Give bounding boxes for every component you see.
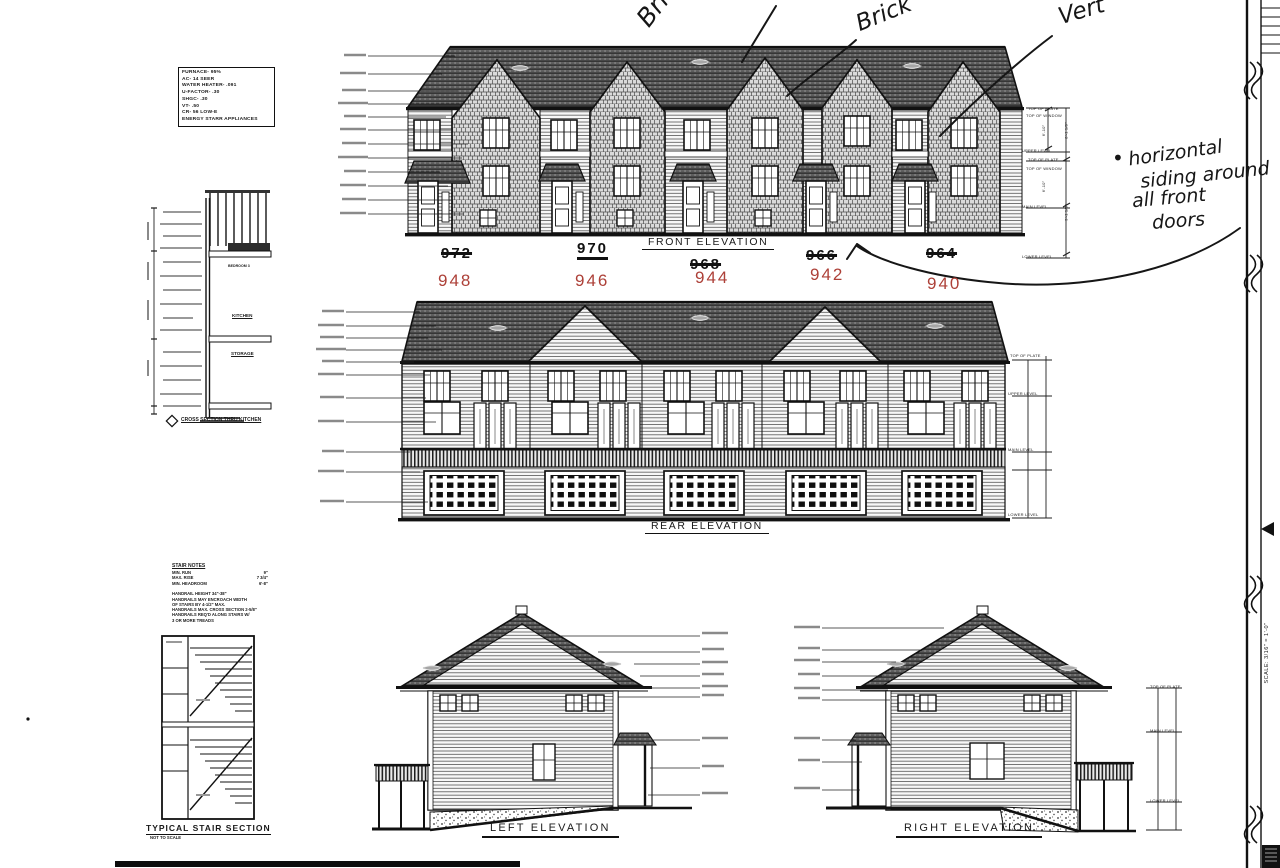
deck-railing: [376, 766, 428, 781]
old-unit-number: 966: [806, 247, 837, 264]
scan-edge-bar: [115, 861, 520, 867]
garage-door: [424, 471, 504, 515]
porch-roof: [539, 164, 585, 181]
level-label: TOP OF WINDOW: [1026, 113, 1062, 118]
arrow-head: [847, 244, 870, 259]
level-label: LOWER LEVEL: [1022, 254, 1052, 259]
garage-door: [664, 471, 744, 515]
left-elevation-drawing: [372, 606, 728, 830]
garage-door: [902, 471, 982, 515]
room-label: KITCHEN: [232, 313, 252, 318]
window: [614, 166, 640, 196]
stair-note-label: MIN. HEADROOM: [172, 581, 207, 586]
stray-mark: [26, 717, 29, 720]
revised-unit-number: 948: [438, 271, 472, 291]
note-bullet: •: [1112, 146, 1124, 170]
room-label: STORAGE: [231, 351, 254, 356]
window: [483, 118, 509, 148]
spec-line: SHGC- .30: [182, 97, 274, 104]
old-unit-number: 972: [441, 245, 472, 262]
handrail-note: 3 OR MORE TREADS: [172, 618, 268, 623]
deck-posts: [379, 781, 424, 828]
window: [951, 118, 977, 148]
revised-unit-number: 940: [927, 274, 961, 294]
dimension-text: 9'-1 1/8": [1064, 204, 1069, 220]
stair-section-subtitle: NOT TO SCALE: [150, 835, 181, 840]
window: [752, 166, 778, 196]
wall-section: [206, 198, 210, 418]
north-marker: [1261, 522, 1274, 536]
dimension-text: 6'-10": [1041, 181, 1046, 192]
stair-section-title: TYPICAL STAIR SECTION: [146, 823, 271, 835]
window: [684, 120, 710, 150]
cross-section-title: CROSS SECTION THRU KITCHEN: [181, 417, 261, 423]
porch-roof: [848, 733, 890, 745]
garage-door: [545, 471, 625, 515]
stair-note-value: 6'-8": [259, 581, 268, 586]
old-unit-number: 964: [926, 245, 957, 262]
stair-section-drawing: [162, 636, 254, 819]
spec-line: ENERGY STARR APPLIANCES: [182, 117, 274, 124]
dimension-text: 8'-1 1/8": [1064, 122, 1069, 138]
title-block-text-block: [1262, 845, 1280, 868]
window: [414, 120, 440, 150]
deck-railing: [1076, 764, 1132, 780]
level-label: UPPER LEVEL: [1008, 391, 1038, 396]
entry-door: [683, 181, 703, 233]
window: [551, 120, 577, 150]
window: [844, 166, 870, 196]
dimension-lines: [1146, 688, 1182, 830]
spec-line: U-FACTOR- .30: [182, 90, 274, 97]
level-label: UPPER LEVEL: [1022, 148, 1052, 153]
balusters: [210, 193, 266, 246]
porch-roof: [670, 164, 716, 181]
deck-posts: [1080, 780, 1128, 830]
entry-door: [418, 181, 438, 233]
level-label: TOP OF PLATE: [1150, 684, 1181, 689]
callout-text-stubs: [702, 633, 728, 793]
cross-section-drawing: [148, 190, 271, 427]
revised-unit-number: 944: [695, 268, 729, 288]
spec-line: CR- 56 LOW-E: [182, 110, 274, 117]
left-elevation-title: LEFT ELEVATION: [482, 822, 619, 838]
spec-line: FURNACE- 95%: [182, 70, 274, 77]
front-elevation-drawing: [338, 47, 1070, 258]
right-elevation-drawing: [794, 606, 1182, 832]
callout-text-stubs: [316, 311, 346, 501]
revised-unit-number: 946: [575, 271, 609, 291]
energy-spec-box: FURNACE- 95% AC- 14 SEER WATER HEATER- .…: [178, 67, 275, 127]
porch-roof: [892, 164, 938, 181]
porch-roof: [614, 733, 656, 745]
level-label: TOP OF PLATE: [1010, 353, 1041, 358]
sheet-scale-text: SCALE: 3/16" = 1'-0": [1264, 598, 1270, 708]
rear-roof: [402, 302, 1008, 361]
section-marker: [166, 415, 177, 426]
linework-canvas: [0, 0, 1280, 868]
room-label: BEDROOM 3: [228, 264, 250, 268]
handwritten-note-line: doors: [1151, 208, 1205, 234]
window: [951, 166, 977, 196]
entry-door: [806, 181, 826, 233]
stair-notes: STAIR NOTES MIN. RUN9" MAX. RISE7 3/4" M…: [172, 563, 268, 623]
front-elevation-title: FRONT ELEVATION: [642, 236, 774, 250]
callout-text-stubs: [338, 55, 368, 213]
right-elevation-title: RIGHT ELEVATION: [896, 822, 1042, 838]
level-label: MAIN LEVEL: [1022, 204, 1048, 209]
deck-railing: [402, 450, 1005, 467]
rear-elevation-drawing: [316, 302, 1052, 521]
callout-text-stubs: [794, 627, 820, 788]
level-label: MAIN LEVEL: [1008, 447, 1034, 452]
porch-roof: [793, 164, 839, 181]
drawing-sheet: FURNACE- 95% AC- 14 SEER WATER HEATER- .…: [0, 0, 1280, 868]
window: [844, 116, 870, 146]
level-label: TOP OF PLATE: [1028, 157, 1059, 162]
window: [896, 120, 922, 150]
window: [614, 118, 640, 148]
window: [752, 118, 778, 148]
garage-door: [786, 471, 866, 515]
dimension-text: 6'-10": [1041, 125, 1046, 136]
old-unit-number: 970: [577, 240, 608, 260]
level-label: TOP OF PLATE: [1028, 106, 1059, 111]
level-label: MAIN LEVEL: [1150, 728, 1176, 733]
entry-door: [552, 181, 572, 233]
window: [483, 166, 509, 196]
rear-elevation-title: REAR ELEVATION: [645, 520, 769, 534]
window: [480, 210, 496, 226]
entry-door: [905, 181, 925, 233]
window: [755, 210, 771, 226]
level-label: LOWER LEVEL: [1008, 512, 1038, 517]
dimension-lines: [1012, 356, 1052, 518]
stair-notes-title: STAIR NOTES: [172, 563, 268, 569]
revised-unit-number: 942: [810, 265, 844, 285]
window: [617, 210, 633, 226]
level-label: TOP OF WINDOW: [1026, 166, 1062, 171]
callout-text-stubs: [160, 212, 202, 406]
level-label: LOWER LEVEL: [1150, 798, 1180, 803]
